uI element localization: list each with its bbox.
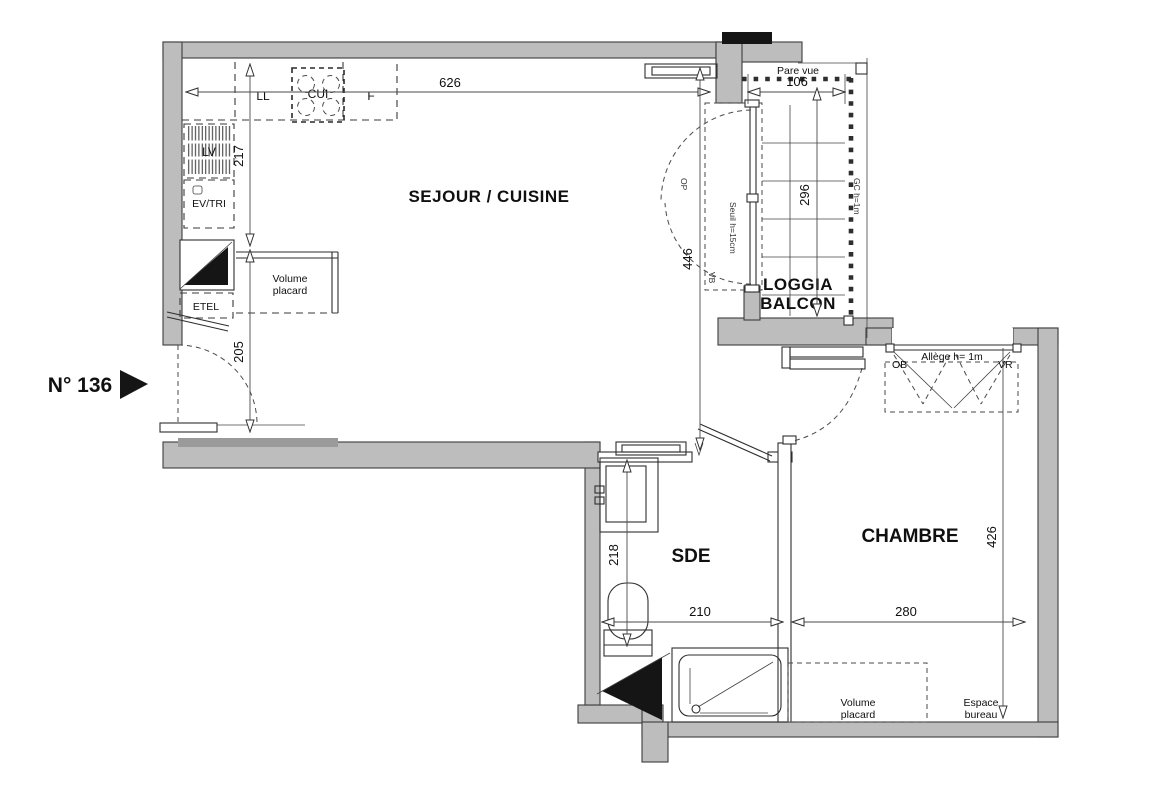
ob-label: OB [892,359,907,371]
sejour-label: SEJOUR / CUISINE [408,187,569,206]
floor-plan-drawing: N° 136 LL CUI F LV EV/TRI ETEL [0,0,1160,800]
electrical-panel-label: ETEL [193,301,219,313]
sde-door-leaf-2 [698,429,770,461]
wall-right [1038,328,1058,737]
sde-door [695,424,772,461]
wc-bowl [608,583,648,639]
loggia-label-2: BALCON [760,294,836,313]
wall-party-strip [178,438,338,447]
desk-area-label-1: Espace [963,697,998,709]
cooktop-label: CUI [308,87,329,101]
chambre-door-swing [793,368,862,441]
dim-217: 217 [231,145,246,167]
shower-enclosure [672,648,788,722]
vr-label: VR [998,359,1013,371]
unit-number-label: N° 136 [48,374,112,397]
sde-fixtures [595,458,788,722]
dim-205: 205 [231,341,246,363]
dimensions: 626 106 217 205 446 296 218 210 280 426 [186,64,1025,718]
wall-loggia-corner-v [716,42,742,103]
window-jamb [886,344,894,352]
dishwasher-label: LV [202,145,216,159]
radiator-sejour [645,64,717,78]
chambre-label: CHAMBRE [861,526,958,547]
entry-closet-label-1: Volume [272,273,307,285]
wall-left [163,42,182,345]
unit-number: N° 136 [48,370,148,399]
partition-sde-top [598,452,692,462]
wc-cistern [604,630,652,656]
wall-top [163,42,742,58]
desk-area-label-2: bureau [965,709,998,721]
dim-296: 296 [797,184,812,206]
fridge-label: F [367,89,374,103]
partition-chambre-door-jamb [783,436,796,444]
radiator-sde-front-inner [622,445,680,452]
sink-label: EV/TRI [192,198,226,210]
loggia-door: OP VB Seuil h=15cm [661,100,762,292]
burner-icon [298,99,315,116]
glazing-block [745,285,759,292]
radiator-passage-bracket [782,347,790,368]
window-jamb [1013,344,1021,352]
room-labels: SEJOUR / CUISINE SDE CHAMBRE [408,187,958,567]
guardrail-label: GC h=1m [852,178,862,215]
vb-label: VB [707,272,717,284]
dim-626: 626 [439,75,461,90]
burner-icon [323,99,340,116]
radiator-sejour-inner [652,67,710,75]
glazing-block [745,100,759,107]
shower-slope-line [698,662,773,707]
door-swing-upper [661,110,751,201]
wall-chambre-top-left [866,328,892,345]
dim-210: 210 [689,604,711,619]
exterior-walls [160,32,1058,762]
dim-106: 106 [786,74,808,89]
washer-label: LL [256,89,270,103]
partition-sde-chambre [778,443,791,722]
wall-step-horizontal [578,705,642,723]
op-label: OP [679,178,689,191]
chambre-window: Allège h= 1m OB VR [885,328,1021,412]
entrance-arrow-icon [120,370,148,399]
seuil-label: Seuil h=15cm [728,202,738,254]
wall-black-segment [722,32,772,44]
chambre-closet-label-1: Volume [840,697,875,709]
guardrail-post [856,63,867,74]
sde-door-arrow-icon [695,443,703,455]
chambre-closet-label-2: placard [841,709,876,721]
dim-426: 426 [984,526,999,548]
glazing-block [747,194,758,202]
entry-wall-stub [160,423,217,432]
guardrail-post [844,316,853,325]
wall-step-stub [642,722,668,762]
window-opening [892,328,1013,345]
shower-tray [679,655,781,716]
entry-closet-label-2: placard [273,285,308,297]
radiators [616,64,865,455]
wall-sde-left [585,442,600,705]
sink-bowl-icon [193,186,202,194]
dim-280: 280 [895,604,917,619]
kitchen-counter-outline [182,62,397,120]
washbasin-bowl [606,466,646,522]
floor-plan-page: N° 136 LL CUI F LV EV/TRI ETEL [0,0,1160,800]
radiator-passage [790,347,863,357]
washbasin-counter [600,458,658,532]
radiator-passage-inner [790,359,865,369]
dim-218: 218 [606,544,621,566]
wall-bottom [663,722,1058,737]
dim-446: 446 [680,248,695,270]
sde-label: SDE [671,546,710,567]
entry-closet: Volume placard [236,252,338,313]
loggia-label-1: LOGGIA [763,275,833,294]
chambre-closet: Volume placard Espace bureau [788,663,999,722]
sde-door-leaf [700,424,772,456]
allege-label: Allège h= 1m [921,351,983,363]
